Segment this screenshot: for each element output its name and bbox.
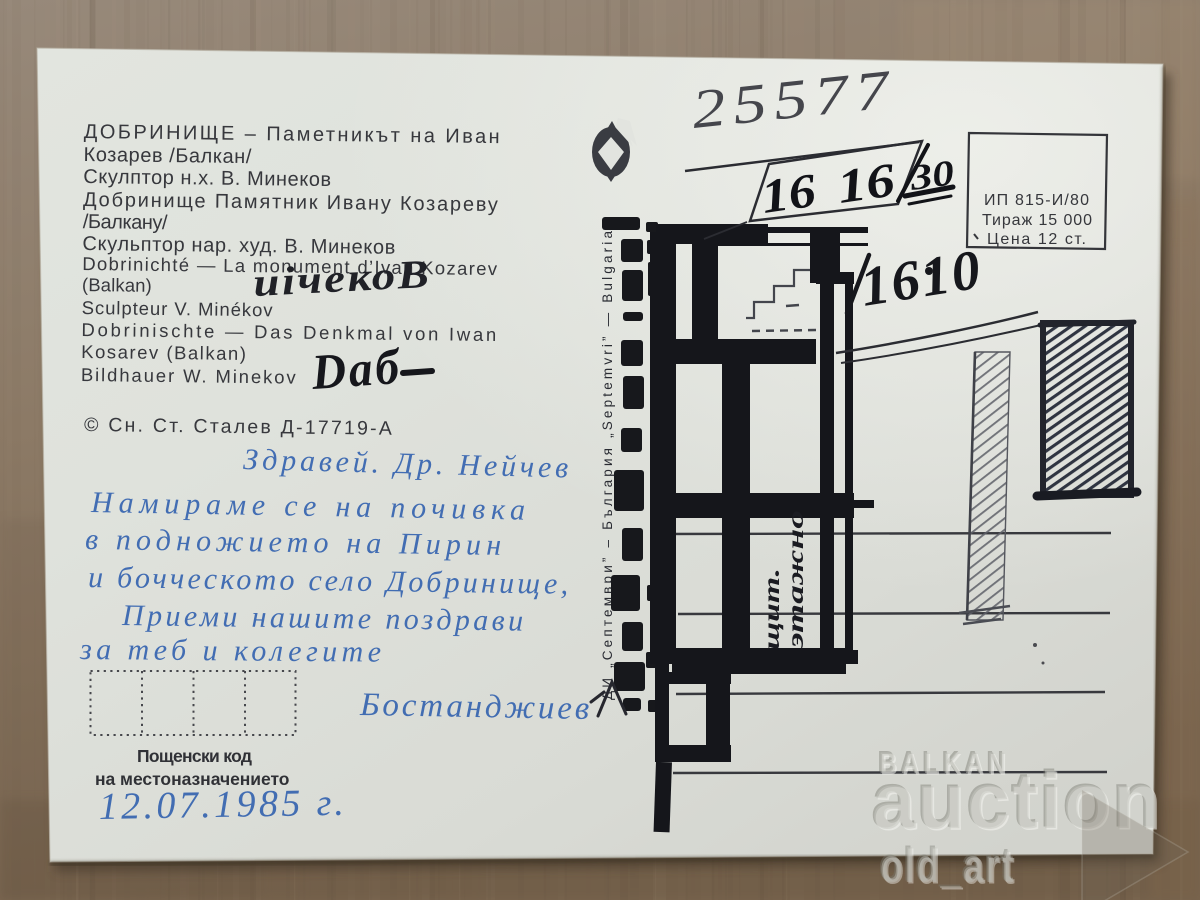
svg-text:Тираж 15 000: Тираж 15 000 — [982, 212, 1093, 229]
svg-text:Пощенски код: Пощенски код — [137, 746, 253, 766]
svg-text:16: 16 — [758, 164, 819, 224]
svg-text:(Balkan): (Balkan) — [82, 274, 153, 296]
svg-text:Dаб: Dаб — [309, 338, 404, 400]
svg-text:Kosarev (Balkan): Kosarev (Balkan) — [81, 341, 247, 364]
svg-text:Козарев /Балкан/: Козарев /Балкан/ — [83, 144, 252, 168]
svg-text:иiчекоВ: иiчекоВ — [252, 251, 432, 305]
svg-text:в подножието на Пирин: в подножието на Пирин — [85, 523, 501, 562]
svg-text:Bildhauer W. Minekov: Bildhauer W. Minekov — [81, 364, 297, 388]
svg-text:ДИ „Септември” – България „Sep: ДИ „Септември” – България „Septemvri” — … — [600, 230, 615, 700]
svg-text:на местоназначението: на местоназначението — [95, 769, 290, 789]
svg-text:Скулптор н.х. В. Минеков: Скулптор н.х. В. Минеков — [83, 166, 332, 191]
svg-text:Цена 12 ст.: Цена 12 ст. — [987, 231, 1087, 248]
svg-text:/Балкану/: /Балкану/ — [83, 211, 169, 234]
svg-text:16: 16 — [834, 153, 898, 213]
svg-text:Sculpteur V. Minékov: Sculpteur V. Minékov — [82, 297, 274, 320]
svg-text:щит.: щит. — [759, 568, 784, 650]
svg-text:old_art: old_art — [880, 840, 1015, 893]
svg-text:ИП 815-И/80: ИП 815-И/80 — [984, 192, 1090, 209]
svg-text:© Сн. Ст. Сталев Д-17719-А: © Сн. Ст. Сталев Д-17719-А — [84, 414, 393, 440]
svg-text:этажно: этажно — [783, 510, 808, 650]
